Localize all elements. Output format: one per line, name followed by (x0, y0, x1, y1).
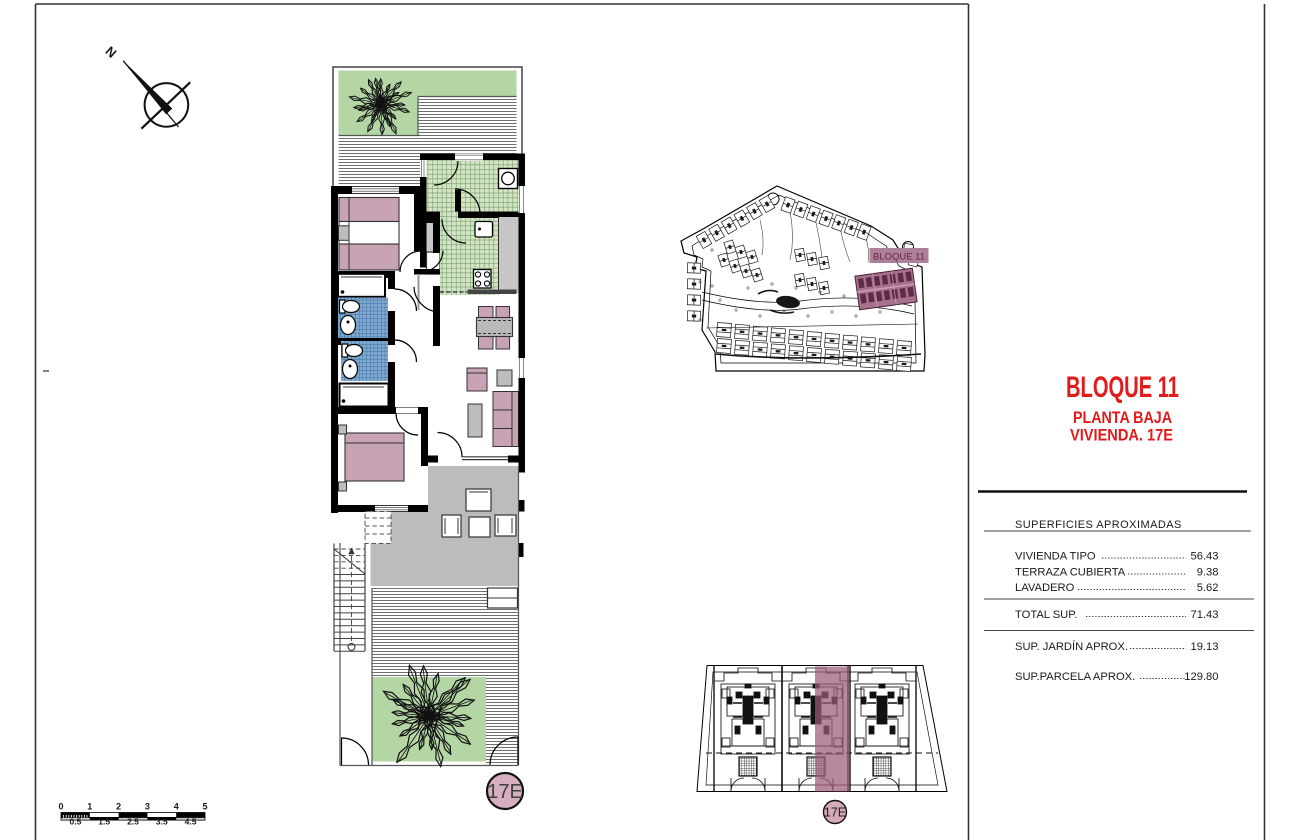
svg-text:SUPERFICIES APROXIMADAS: SUPERFICIES APROXIMADAS (1015, 519, 1182, 531)
svg-text:SUP. JARDÍN APROX.: SUP. JARDÍN APROX. (1015, 640, 1128, 653)
svg-text:BLOQUE 11: BLOQUE 11 (1066, 371, 1179, 404)
svg-text:BLOQUE 11: BLOQUE 11 (873, 251, 925, 262)
svg-text:LAVADERO: LAVADERO (1015, 582, 1075, 594)
svg-text:TERRAZA CUBIERTA: TERRAZA CUBIERTA (1015, 567, 1126, 579)
svg-text:0.5: 0.5 (69, 817, 81, 827)
svg-text:56.43: 56.43 (1191, 551, 1219, 563)
svg-text:71.43: 71.43 (1191, 609, 1219, 621)
svg-text:3: 3 (145, 802, 150, 812)
svg-text:2: 2 (116, 802, 121, 812)
svg-text:17E: 17E (487, 781, 523, 803)
svg-text:SUP.PARCELA APROX.: SUP.PARCELA APROX. (1015, 671, 1135, 683)
svg-text:4: 4 (174, 802, 179, 812)
svg-text:19.13: 19.13 (1191, 641, 1219, 653)
svg-text:TOTAL SUP.: TOTAL SUP. (1015, 609, 1077, 621)
svg-text:VIVIENDA. 17E: VIVIENDA. 17E (1070, 427, 1173, 445)
svg-text:4.5: 4.5 (185, 817, 197, 827)
svg-text:2.5: 2.5 (127, 817, 139, 827)
svg-text:PLANTA BAJA: PLANTA BAJA (1073, 409, 1172, 427)
svg-text:0: 0 (58, 802, 63, 812)
svg-text:VIVIENDA TIPO: VIVIENDA TIPO (1015, 551, 1096, 563)
svg-text:9.38: 9.38 (1197, 567, 1219, 579)
svg-text:129.80: 129.80 (1184, 671, 1218, 683)
svg-text:3.5: 3.5 (156, 817, 168, 827)
svg-text:5: 5 (202, 802, 207, 812)
svg-text:1.5: 1.5 (98, 817, 110, 827)
svg-text:1: 1 (87, 802, 92, 812)
svg-text:17E: 17E (824, 806, 846, 820)
svg-text:5.62: 5.62 (1197, 582, 1219, 594)
